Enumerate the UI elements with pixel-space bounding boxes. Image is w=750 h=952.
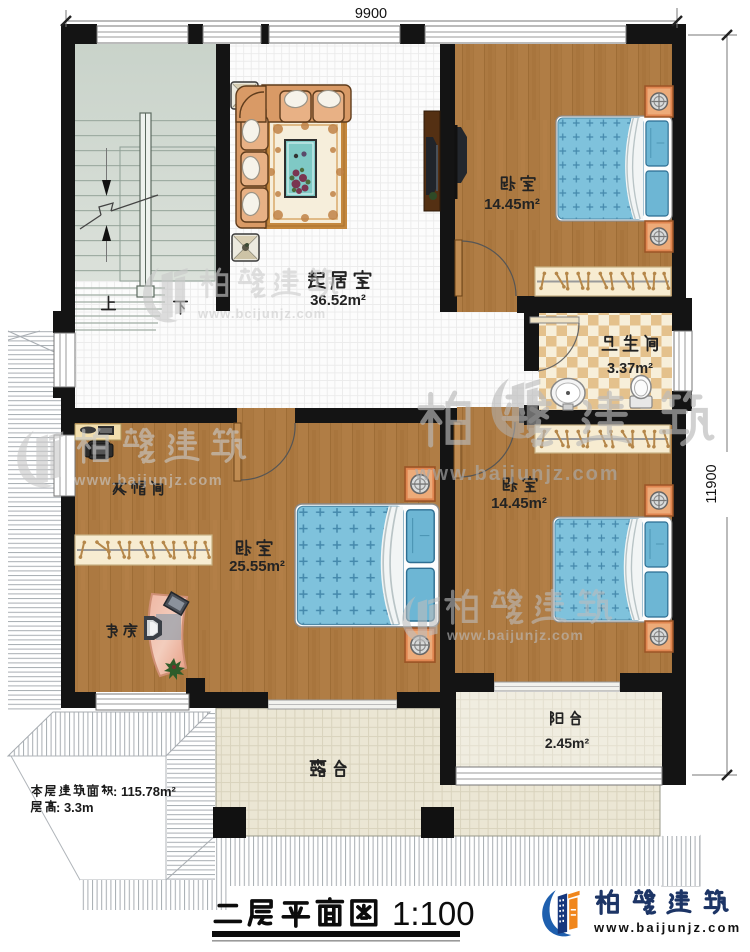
svg-text:3.37m²: 3.37m² [607,361,653,377]
svg-text:: 3.3m: : 3.3m [56,800,94,815]
svg-text:2.45m²: 2.45m² [545,735,590,751]
svg-text:www.bcijunjz.com: www.bcijunjz.com [197,306,326,321]
svg-text:www.baijunjz.com: www.baijunjz.com [446,627,584,643]
svg-text:www.baijunjz.com: www.baijunjz.com [593,920,741,935]
svg-text:14.45m²: 14.45m² [484,196,540,213]
svg-text:14.45m²: 14.45m² [491,495,547,512]
svg-text:11900: 11900 [704,464,720,503]
svg-text:25.55m²: 25.55m² [229,558,285,575]
svg-text:: 115.78m²: : 115.78m² [113,784,177,799]
svg-text:9900: 9900 [355,6,387,22]
svg-text:1:100: 1:100 [392,895,475,932]
svg-text:www.baijunjz.com: www.baijunjz.com [414,463,620,485]
svg-text:www.baijunjz.com: www.baijunjz.com [73,473,223,489]
